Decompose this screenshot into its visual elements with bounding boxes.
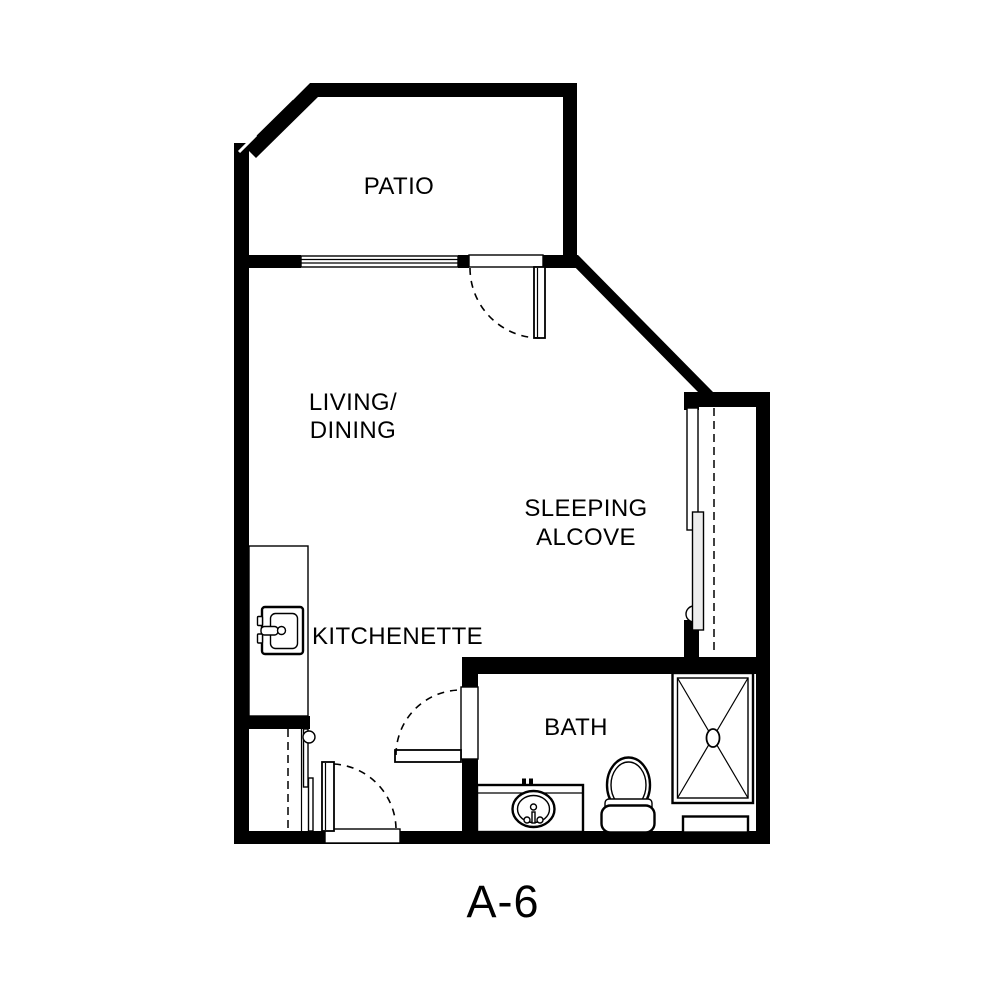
sliding-panel [309,778,314,831]
door-pull [303,731,315,743]
bath-vanity-icon [477,779,583,833]
window-frame [301,256,458,267]
patio-door-header [469,255,543,267]
patio-door-icon [469,255,545,338]
wall-patio-corner-diagonal [245,84,320,158]
wall-right [756,392,770,844]
wall-recess [683,817,748,833]
shower-icon [673,673,754,833]
wall-patio-living-mid [458,255,469,268]
toilet-icon [602,758,655,833]
floor-plan-canvas: PATIO LIVING/ DINING SLEEPING ALCOVE KIT… [0,0,1000,1000]
wall-bath-north [462,657,770,674]
patio-door-swing-arc [470,268,540,338]
wall-alcove-diagonal [563,255,713,392]
wall-closet-stub-top [684,392,699,410]
wall-patio-top [295,83,577,97]
entry-door-swing-arc [334,764,396,828]
sink-faucet [261,627,278,636]
room-label-bath: BATH [544,714,608,742]
floor-plan-drawing [0,0,1000,1000]
wall-kitchen-closet-divider [234,716,310,729]
patio-door-panel [534,267,545,338]
sleeping-closet-icon [686,408,714,652]
room-label-sleeping-line2: ALCOVE [536,524,636,552]
bath-door-swing-arc [396,690,461,755]
sliding-panel [693,512,704,630]
kitchen-sink-icon [258,607,304,654]
wall-patio-living-right [543,255,565,268]
room-label-kitchenette: KITCHENETTE [312,623,483,651]
wall-left [234,143,249,844]
room-label-patio: PATIO [364,173,434,201]
entry-closet-icon [288,729,315,831]
shower-drain [707,729,720,747]
room-label-sleeping-line1: SLEEPING [524,495,647,523]
patio-window-icon [301,256,458,267]
wall-patio-living-left [249,255,301,268]
room-label-living-line2: DINING [310,417,396,445]
entry-door-icon [322,762,400,843]
bath-door-panel [395,750,461,762]
room-label-living-line1: LIVING/ [309,389,397,417]
toilet-tank [602,806,655,833]
bath-door-icon [395,687,478,762]
wall-patio-right [563,83,577,268]
entry-door-panel [322,762,334,831]
entry-door-threshold [325,829,400,843]
plan-title: A-6 [466,876,539,928]
bath-doorway [461,687,478,759]
